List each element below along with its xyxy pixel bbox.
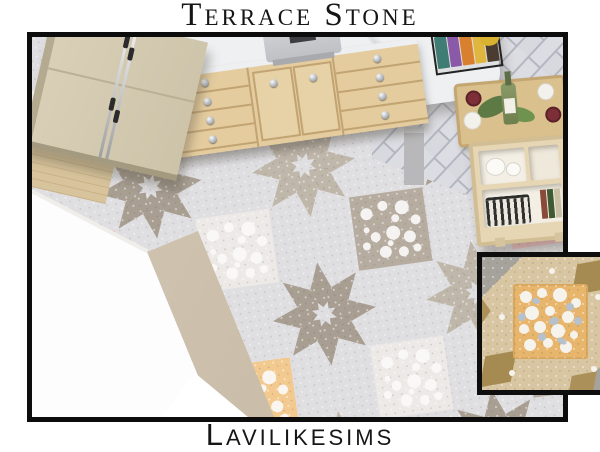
wine-glass — [545, 106, 562, 123]
cart-shelf — [478, 147, 527, 185]
creator-name: Lavilikesims — [0, 421, 600, 450]
white-bowl — [485, 157, 506, 177]
drawer-knob — [372, 54, 381, 63]
page-title: Terrace Stone — [0, 0, 600, 32]
fridge-handle-grip — [123, 35, 131, 49]
drawer-stack-right — [334, 44, 429, 135]
door-knob — [309, 73, 318, 82]
white-bowl — [505, 162, 521, 177]
bar-cart — [453, 74, 568, 243]
drawer-knob — [375, 72, 384, 81]
cart-shelf — [528, 144, 561, 180]
fridge-handle-grip — [113, 109, 121, 123]
book — [554, 188, 563, 217]
drawer-knob — [203, 96, 212, 105]
serving-plate — [463, 111, 483, 131]
swatch-svg — [482, 257, 600, 390]
drawer-knob — [206, 115, 215, 124]
cart-leg — [555, 232, 566, 242]
wine-bottle-label — [504, 98, 516, 114]
cart-shelf — [482, 183, 565, 228]
floor-patch — [370, 336, 454, 420]
floor-patch — [349, 187, 433, 271]
drawer-knob — [380, 110, 389, 119]
cabinet-door — [292, 61, 341, 136]
cart-leg — [495, 237, 506, 247]
floor-star — [531, 32, 568, 33]
serving-plate — [537, 82, 555, 100]
spice-rack-shelf — [428, 32, 497, 37]
wine-bottle-neck — [504, 71, 511, 85]
drawer-knob — [209, 134, 218, 143]
fridge-handle-grip — [127, 47, 135, 61]
door-knob — [269, 79, 278, 88]
cabinet-doors — [248, 56, 345, 147]
book-stack — [540, 188, 562, 219]
striped-basket — [485, 194, 531, 227]
tile-swatch-inset — [477, 252, 600, 395]
fridge-handle-grip — [108, 97, 116, 111]
fridge-handle-bar — [98, 32, 132, 158]
drawer-knob — [378, 91, 387, 100]
cc-preview-poster: Terrace Stone — [0, 0, 600, 450]
cart-shelves — [468, 134, 568, 247]
drawer-knob — [201, 78, 210, 87]
